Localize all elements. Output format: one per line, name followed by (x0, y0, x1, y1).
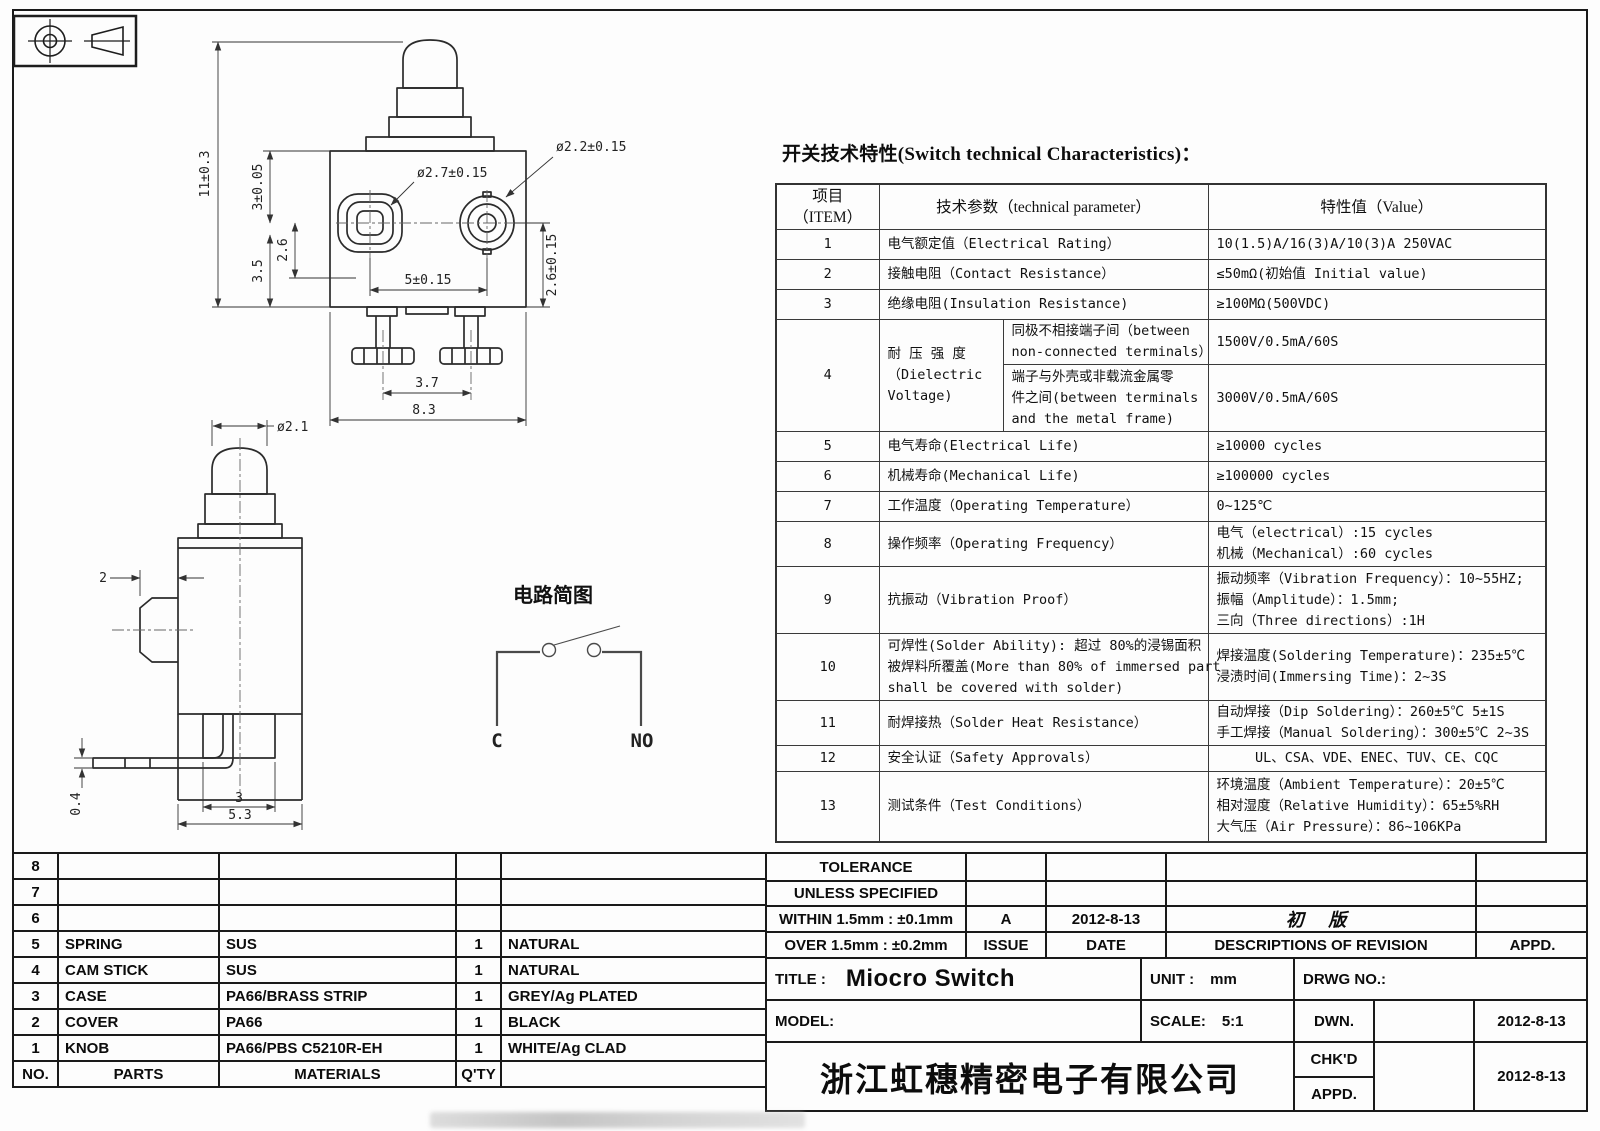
value-cell: 3000V/0.5mA/60S (1208, 365, 1546, 432)
front-view-centerlines (336, 190, 520, 400)
part-qty: 1 (456, 957, 501, 983)
part-finish: NATURAL (501, 957, 766, 983)
tolerance-within: WITHIN 1.5mm : ±0.1mm (765, 905, 965, 931)
dim-body-width: 8.3 (412, 403, 435, 418)
dim-recess-width: 3 (235, 791, 243, 806)
company-name: 浙江虹穗精密电子有限公司 (765, 1041, 1293, 1110)
table-row: 1KNOBPA66/PBS C5210R-EH1WHITE/Ag CLAD (13, 1035, 766, 1061)
part-name (58, 905, 219, 931)
part-qty: 1 (456, 931, 501, 957)
revision-appd-empty (1475, 905, 1588, 931)
parameter-cell: 耐焊接热（Solder Heat Resistance） (879, 701, 1208, 746)
table-row: 9 抗振动（Vibration Proof） 振动频率（Vibration Fr… (776, 567, 1546, 634)
table-row: 6 (13, 905, 766, 931)
unit-cell: UNIT : mm (1140, 957, 1293, 999)
dim-right-2-6: 2.6±0.15 (545, 234, 560, 297)
parameter-cell: 接触电阻（Contact Resistance） (879, 260, 1208, 290)
revision-date-value: 2012-8-13 (1045, 905, 1165, 931)
table-row: 7 (13, 879, 766, 905)
revision-empty-cell (1045, 852, 1165, 880)
value-cell: 焊接温度(Soldering Temperature)：235±5℃浸渍时间(I… (1208, 634, 1546, 701)
item-no: 12 (776, 746, 879, 772)
footer-finish (501, 1061, 766, 1087)
table-row: 8 (13, 853, 766, 879)
parameter-cell: 操作频率（Operating Frequency） (879, 522, 1208, 567)
revision-empty-cell (1475, 852, 1588, 880)
item-no: 9 (776, 567, 879, 634)
table-row: 5 电气寿命(Electrical Life) ≥10000 cycles (776, 432, 1546, 462)
parameter-cell: 电气寿命(Electrical Life) (879, 432, 1208, 462)
part-no: 2 (13, 1009, 58, 1035)
part-no: 4 (13, 957, 58, 983)
value-cell: 自动焊接（Dip Soldering）：260±5℃ 5±1S手工焊接（Manu… (1208, 701, 1546, 746)
tech-characteristics-table: 项目（ITEM） 技术参数（technical parameter） 特性值（V… (775, 183, 1547, 843)
scale-label: SCALE: (1150, 1013, 1206, 1030)
value-cell: 电气（electrical）:15 cycles机械（Mechanical）:6… (1208, 522, 1546, 567)
parameter-cell: 安全认证（Safety Approvals） (879, 746, 1208, 772)
model-cell: MODEL: (765, 999, 1140, 1041)
dim-terminal-thickness: 0.4 (69, 792, 84, 816)
item-no: 13 (776, 772, 879, 842)
drwg-no-cell: DRWG NO.: (1293, 957, 1588, 999)
part-name: SPRING (58, 931, 219, 957)
part-no: 6 (13, 905, 58, 931)
part-name: CASE (58, 983, 219, 1009)
part-material: PA66 (219, 1009, 456, 1035)
circuit-no-label: NO (631, 730, 654, 752)
dim-cap-height: 3±0.05 (251, 164, 266, 211)
col-header-appd: APPD. (1475, 931, 1588, 957)
dim-terminal-pitch: 5±0.15 (405, 273, 452, 288)
part-finish (501, 853, 766, 879)
tolerance-subheading: UNLESS SPECIFIED (765, 880, 965, 905)
sub-parameter-cell: 同极不相接端子间（betweennon-connected terminals） (1003, 320, 1208, 365)
dwn-label-cell: DWN. (1293, 999, 1373, 1041)
part-no: 1 (13, 1035, 58, 1061)
table-row: 2COVERPA661BLACK (13, 1009, 766, 1035)
dwn-date-cell: 2012-8-13 (1473, 999, 1588, 1041)
parameter-cell: 测试条件（Test Conditions） (879, 772, 1208, 842)
part-material (219, 905, 456, 931)
scan-smudge (430, 1112, 805, 1128)
parameter-cell: 耐 压 强 度（DielectricVoltage) (879, 320, 1003, 432)
unit-label: UNIT : (1150, 971, 1194, 988)
dim-knob-dia: ø2.1 (277, 420, 308, 435)
part-no: 7 (13, 879, 58, 905)
dim-pin-pitch: 3.7 (415, 376, 438, 391)
table-row: 4CAM STICKSUS1NATURAL (13, 957, 766, 983)
parameter-cell: 机械寿命(Mechanical Life) (879, 462, 1208, 492)
table-row: 7 工作温度（Operating Temperature） 0~125℃ (776, 492, 1546, 522)
item-no: 4 (776, 320, 879, 432)
part-name: COVER (58, 1009, 219, 1035)
revision-empty-cell (1165, 880, 1475, 905)
circuit-common-label: C (491, 730, 502, 752)
circuit-diagram-title: 电路简图 (513, 583, 593, 607)
circuit-diagram (497, 626, 641, 726)
table-row: 2 接触电阻（Contact Resistance） ≤50mΩ(初始值 Ini… (776, 260, 1546, 290)
value-cell: ≥100000 cycles (1208, 462, 1546, 492)
tolerance-heading: TOLERANCE (765, 852, 965, 880)
part-qty (456, 853, 501, 879)
value-cell: 环境温度（Ambient Temperature）：20±5℃相对湿度（Rela… (1208, 772, 1546, 842)
table-row: 10 可焊性(Solder Ability): 超过 80%的浸锡面积被焊料所覆… (776, 634, 1546, 701)
revision-empty-cell (965, 880, 1045, 905)
part-finish: NATURAL (501, 931, 766, 957)
footer-materials: MATERIALS (219, 1061, 456, 1087)
part-finish (501, 905, 766, 931)
table-row: 6 机械寿命(Mechanical Life) ≥100000 cycles (776, 462, 1546, 492)
part-qty: 1 (456, 983, 501, 1009)
sub-parameter-cell: 端子与外壳或非载流金属零件之间(between terminalsand the… (1003, 365, 1208, 432)
table-row: 1 电气额定值（Electrical Rating） 10(1.5)A/16(3… (776, 230, 1546, 260)
title-cell: TITLE : Miocro Switch (765, 957, 1140, 999)
value-cell: UL、CSA、VDE、ENEC、TUV、CE、CQC (1208, 746, 1546, 772)
revision-empty-cell (1045, 880, 1165, 905)
dim-right-terminal-dia: ø2.2±0.15 (556, 140, 626, 155)
col-header-descriptions: DESCRIPTIONS OF REVISION (1165, 931, 1475, 957)
part-no: 3 (13, 983, 58, 1009)
dwn-signature-cell (1373, 999, 1473, 1041)
table-footer-row: NO. PARTS MATERIALS Q'TY (13, 1061, 766, 1087)
item-no: 8 (776, 522, 879, 567)
table-row: 3CASEPA66/BRASS STRIP1GREY/Ag PLATED (13, 983, 766, 1009)
item-no: 2 (776, 260, 879, 290)
title-value: Miocro Switch (846, 965, 1015, 993)
col-header-value: 特性值（Value） (1208, 184, 1546, 230)
title-label: TITLE : (775, 971, 826, 988)
side-view-outline (93, 448, 302, 800)
table-row: 8 操作频率（Operating Frequency） 电气（electrica… (776, 522, 1546, 567)
col-header-issue: ISSUE (965, 931, 1045, 957)
revision-empty-cell (1165, 852, 1475, 880)
tolerance-over: OVER 1.5mm : ±0.2mm (765, 931, 965, 957)
part-qty (456, 905, 501, 931)
part-qty (456, 879, 501, 905)
revision-empty-cell (965, 852, 1045, 880)
parameter-cell: 抗振动（Vibration Proof） (879, 567, 1208, 634)
value-cell: ≥10000 cycles (1208, 432, 1546, 462)
tech-characteristics-title: 开关技术特性(Switch technical Characteristics)… (782, 139, 1201, 166)
parameter-cell: 电气额定值（Electrical Rating） (879, 230, 1208, 260)
table-row: 13 测试条件（Test Conditions） 环境温度（Ambient Te… (776, 772, 1546, 842)
part-name: CAM STICK (58, 957, 219, 983)
table-row: 11 耐焊接热（Solder Heat Resistance） 自动焊接（Dip… (776, 701, 1546, 746)
part-finish: BLACK (501, 1009, 766, 1035)
part-qty: 1 (456, 1009, 501, 1035)
dim-protrusion: 2 (99, 571, 107, 586)
part-name (58, 879, 219, 905)
dim-overall-height: 11±0.3 (198, 151, 213, 198)
value-cell: 10(1.5)A/16(3)A/10(3)A 250VAC (1208, 230, 1546, 260)
item-no: 10 (776, 634, 879, 701)
revision-description-value: 初 版 (1165, 905, 1475, 931)
scale-cell: SCALE: 5:1 (1140, 999, 1293, 1041)
part-material (219, 853, 456, 879)
col-header-parameter: 技术参数（technical parameter） (879, 184, 1208, 230)
part-no: 8 (13, 853, 58, 879)
item-no: 5 (776, 432, 879, 462)
side-view-centerlines (112, 438, 240, 800)
technical-drawing: 11±0.3 3±0.05 2.6 3.5 ø2.7±0.15 ø2.2±0.1… (0, 0, 770, 852)
item-no: 7 (776, 492, 879, 522)
value-cell: ≥100MΩ(500VDC) (1208, 290, 1546, 320)
parameter-cell: 绝缘电阻(Insulation Resistance) (879, 290, 1208, 320)
dim-body-depth: 5.3 (228, 808, 251, 823)
item-no: 11 (776, 701, 879, 746)
col-header-date: DATE (1045, 931, 1165, 957)
part-no: 5 (13, 931, 58, 957)
part-material: SUS (219, 957, 456, 983)
scale-value: 5:1 (1222, 1013, 1244, 1030)
part-name (58, 853, 219, 879)
parameter-cell: 工作温度（Operating Temperature） (879, 492, 1208, 522)
parameter-cell: 可焊性(Solder Ability): 超过 80%的浸锡面积被焊料所覆盖(M… (879, 634, 1208, 701)
part-material (219, 879, 456, 905)
parts-table: 8 7 6 5SPRINGSUS1NATURAL 4CAM STICKSUS1N… (12, 852, 767, 1088)
part-finish (501, 879, 766, 905)
dim-3-5: 3.5 (251, 259, 266, 282)
value-cell: ≤50mΩ(初始值 Initial value) (1208, 260, 1546, 290)
appd-label-cell: APPD. (1293, 1076, 1373, 1110)
item-no: 3 (776, 290, 879, 320)
title-block: TOLERANCE UNLESS SPECIFIED WITHIN 1.5mm … (765, 852, 1588, 1112)
chkd-signature-cell (1373, 1041, 1473, 1110)
table-row: 5SPRINGSUS1NATURAL (13, 931, 766, 957)
col-header-item: 项目（ITEM） (776, 184, 879, 230)
table-row: 3 绝缘电阻(Insulation Resistance) ≥100MΩ(500… (776, 290, 1546, 320)
dim-2-6: 2.6 (276, 238, 291, 261)
part-qty: 1 (456, 1035, 501, 1061)
item-no: 1 (776, 230, 879, 260)
drawing-sheet: 11±0.3 3±0.05 2.6 3.5 ø2.7±0.15 ø2.2±0.1… (0, 0, 1600, 1131)
revision-issue-value: A (965, 905, 1045, 931)
footer-parts: PARTS (58, 1061, 219, 1087)
part-finish: GREY/Ag PLATED (501, 983, 766, 1009)
part-finish: WHITE/Ag CLAD (501, 1035, 766, 1061)
dim-left-terminal-dia: ø2.7±0.15 (417, 166, 487, 181)
value-cell: 1500V/0.5mA/60S (1208, 320, 1546, 365)
value-cell: 0~125℃ (1208, 492, 1546, 522)
table-row: 12 安全认证（Safety Approvals） UL、CSA、VDE、ENE… (776, 746, 1546, 772)
part-material: SUS (219, 931, 456, 957)
front-view-outline (330, 40, 526, 364)
revision-empty-cell (1475, 880, 1588, 905)
part-material: PA66/PBS C5210R-EH (219, 1035, 456, 1061)
chkd-date-cell: 2012-8-13 (1473, 1041, 1588, 1110)
unit-value: mm (1210, 971, 1237, 988)
part-material: PA66/BRASS STRIP (219, 983, 456, 1009)
first-angle-projection-symbol (14, 16, 136, 66)
footer-qty: Q'TY (456, 1061, 501, 1087)
footer-no: NO. (13, 1061, 58, 1087)
chkd-label-cell: CHK'D (1293, 1041, 1373, 1076)
item-no: 6 (776, 462, 879, 492)
part-name: KNOB (58, 1035, 219, 1061)
value-cell: 振动频率（Vibration Frequency）：10~55HZ;振幅（Amp… (1208, 567, 1546, 634)
table-row: 4 耐 压 强 度（DielectricVoltage) 同极不相接端子间（be… (776, 320, 1546, 365)
